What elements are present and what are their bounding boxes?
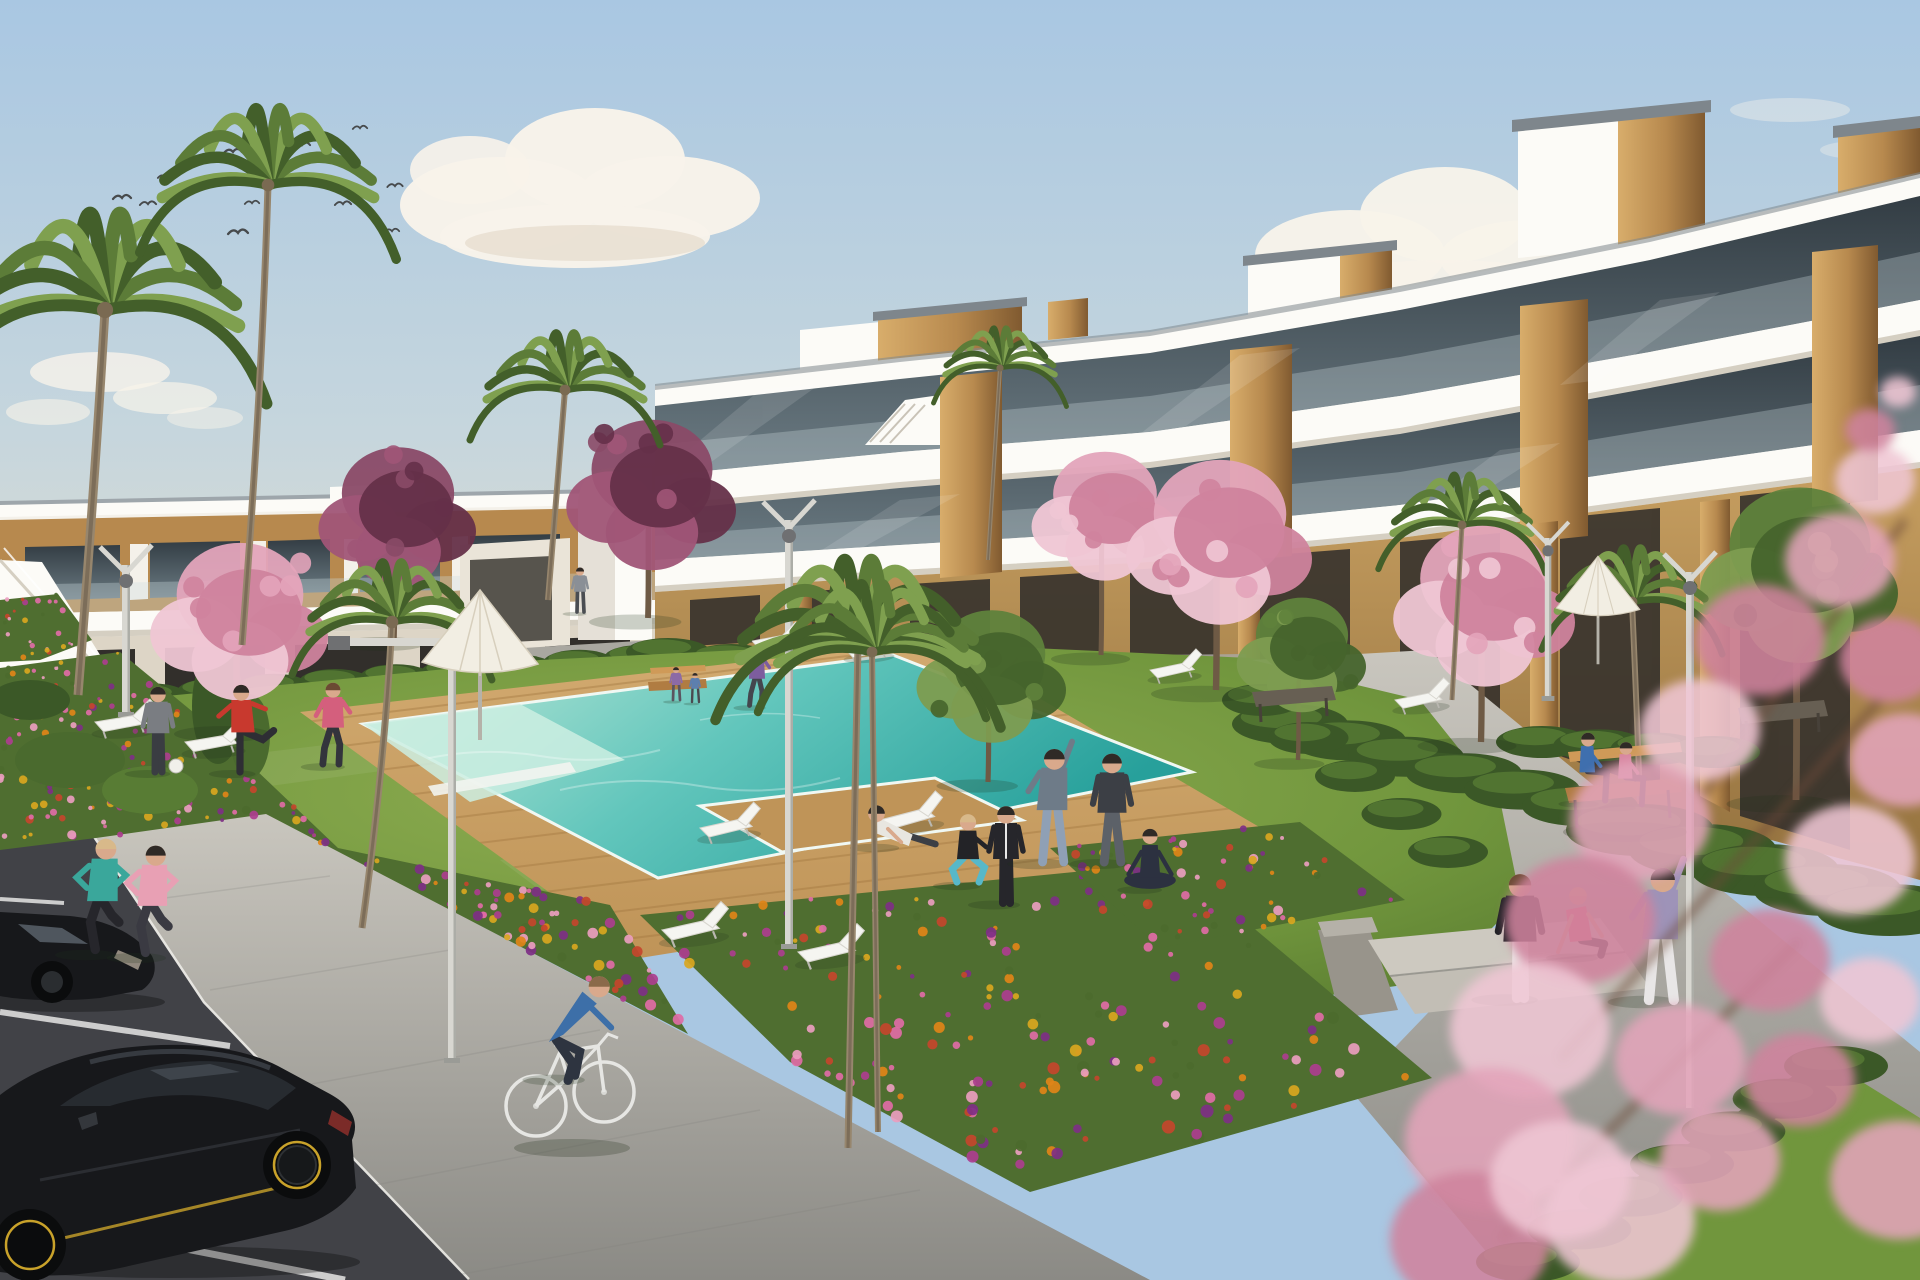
blossom-cluster (1745, 1033, 1855, 1127)
flower (973, 1077, 983, 1087)
flower (684, 958, 695, 969)
flower (1223, 1114, 1233, 1124)
flower (539, 920, 545, 926)
flower (1224, 1104, 1231, 1111)
person-limb (692, 689, 693, 703)
flower (125, 741, 132, 748)
flower (1001, 990, 1012, 1001)
lamp-base (781, 944, 797, 949)
flower (632, 946, 643, 957)
person-shadow (107, 953, 166, 963)
palm-crown (97, 302, 113, 318)
flower (415, 864, 425, 874)
flower (1280, 915, 1285, 920)
flower (1261, 924, 1267, 930)
flower (787, 1001, 797, 1011)
flower (828, 972, 837, 981)
flower (758, 900, 767, 909)
flower (490, 903, 497, 910)
flower (1085, 992, 1093, 1000)
tree-foliage-dot (290, 553, 311, 574)
flower (1186, 1062, 1194, 1070)
flower (6, 666, 11, 671)
flower (606, 960, 614, 968)
flower (554, 910, 560, 916)
flower (1200, 1105, 1213, 1118)
flower (69, 709, 75, 715)
cloud (1730, 98, 1850, 122)
person-body (691, 678, 699, 689)
flower (1099, 906, 1107, 914)
flower (961, 972, 967, 978)
bench-leg (1818, 713, 1819, 732)
flower (953, 1041, 961, 1049)
flower (1270, 871, 1274, 875)
roof-wood-box-2 (1048, 298, 1088, 340)
flower (504, 892, 514, 902)
tree-foliage-dot (657, 489, 677, 509)
flower (1179, 840, 1187, 848)
tree-foliage-dot (1206, 540, 1228, 562)
flower (1162, 1120, 1175, 1133)
flower (421, 874, 431, 884)
flower (1357, 887, 1366, 896)
flower (986, 1080, 993, 1087)
blossom-cluster (1695, 585, 1825, 696)
tree-foliage-dot (1291, 646, 1306, 661)
flower (55, 794, 62, 801)
flower (292, 811, 296, 815)
flower (1091, 850, 1095, 854)
flower (130, 755, 135, 760)
flower (177, 810, 181, 814)
flower (1291, 1055, 1300, 1064)
flower (1071, 850, 1080, 859)
tree-foliage-dot (1466, 633, 1488, 655)
flower (620, 995, 626, 1001)
flower (42, 676, 45, 679)
flower (102, 659, 108, 665)
flower (1028, 1019, 1039, 1030)
flower (70, 681, 74, 685)
flower (836, 898, 844, 906)
flower (927, 1039, 937, 1049)
flower (1202, 902, 1207, 907)
flower (1172, 1072, 1179, 1079)
flower (504, 934, 510, 940)
tree-foliage-dot (1025, 683, 1043, 701)
flower (35, 598, 41, 604)
flower (1, 745, 7, 751)
blossom-cluster (1820, 958, 1920, 1043)
flower (1315, 1012, 1324, 1021)
flower (116, 652, 119, 655)
flower (29, 814, 34, 819)
flower (13, 610, 16, 613)
blossom-cluster (1615, 1005, 1745, 1116)
flower (1236, 915, 1246, 925)
palm-crown (996, 364, 1003, 371)
blossom-cluster (1660, 1109, 1780, 1211)
flower (516, 936, 526, 946)
flower (76, 724, 82, 730)
flower (1161, 924, 1169, 932)
flower (211, 788, 218, 795)
flower (1036, 1013, 1042, 1019)
flower (108, 683, 114, 689)
flower (161, 821, 168, 828)
flower (968, 1035, 973, 1040)
flower (594, 960, 605, 971)
flower (131, 693, 136, 698)
flower (1304, 861, 1309, 866)
flower (572, 944, 578, 950)
tree-foliage-dot (386, 538, 405, 557)
flower (742, 959, 750, 967)
flower (661, 998, 667, 1004)
flower (279, 802, 285, 808)
flower (1046, 1078, 1054, 1086)
flower (679, 948, 690, 959)
flower (775, 939, 781, 945)
tree-foliage-dot (347, 539, 366, 558)
flower (6, 632, 10, 636)
flower (1085, 887, 1093, 895)
flower (1086, 1037, 1095, 1046)
lamp-head (1542, 545, 1553, 556)
flower (599, 926, 607, 934)
person-limb (577, 591, 578, 612)
flower (32, 669, 36, 673)
flower (59, 717, 64, 722)
flower (56, 630, 62, 636)
flower (861, 1072, 869, 1080)
tree-shadow (1051, 653, 1130, 666)
flower (250, 786, 257, 793)
soccer-ball (169, 759, 183, 773)
flower (50, 809, 57, 816)
flower (1309, 1035, 1318, 1044)
flower (1227, 1039, 1233, 1045)
person-limb (1649, 939, 1655, 1000)
hedge-shrub-light (1275, 724, 1331, 742)
tree-foliage-dot (594, 424, 614, 444)
flower (1239, 1074, 1246, 1081)
tree-shadow (1151, 686, 1252, 703)
flower (1152, 1076, 1163, 1087)
person-limb (583, 591, 584, 612)
person-body (1097, 772, 1126, 812)
flower (1192, 913, 1197, 918)
flower (531, 887, 541, 897)
flower (990, 940, 996, 946)
flower (61, 644, 66, 649)
flower (928, 899, 935, 906)
flower (983, 1002, 991, 1010)
tree-foliage-dot (1262, 613, 1277, 628)
person-body (957, 831, 979, 860)
flower (1249, 856, 1257, 864)
flower (880, 1023, 892, 1035)
flower (1030, 1031, 1039, 1040)
flower (647, 968, 652, 973)
tree-shadow (937, 779, 1018, 792)
flower (3, 621, 7, 625)
flower (1050, 896, 1060, 906)
flower (45, 648, 50, 653)
tree-foliage-dot (931, 700, 949, 718)
flower (59, 660, 64, 665)
flower (8, 617, 11, 620)
flower (20, 654, 26, 660)
flower (300, 816, 307, 823)
cloud (410, 136, 530, 204)
flower (31, 802, 38, 809)
flower (807, 1025, 815, 1033)
flower (1051, 1148, 1062, 1159)
person-body (672, 673, 681, 685)
flower (1032, 902, 1041, 911)
flower (966, 1091, 978, 1103)
flower (677, 914, 684, 921)
flower (986, 994, 991, 999)
flower (1171, 1090, 1180, 1099)
flower (117, 832, 123, 838)
flower (232, 810, 237, 815)
person-shadow (684, 703, 700, 706)
flower (146, 681, 153, 688)
flower (41, 613, 45, 617)
flower (1135, 1064, 1143, 1072)
flower (308, 828, 314, 834)
person-shadow (209, 770, 256, 778)
lamp-pole-shade (454, 648, 457, 1062)
person-shadow (663, 700, 681, 703)
flower (223, 792, 229, 798)
flower (493, 889, 501, 897)
flower (1282, 1053, 1289, 1060)
flower (1401, 1073, 1409, 1081)
flower (6, 738, 13, 745)
flower (1012, 943, 1020, 951)
person-limb (698, 689, 699, 703)
tree-foliage-dot (1199, 479, 1221, 501)
flower (1265, 833, 1273, 841)
person-limb (1115, 812, 1121, 862)
cloud (465, 225, 705, 261)
tree-foliage (610, 445, 711, 528)
flower (54, 666, 58, 670)
flower (730, 950, 736, 956)
flower (864, 1017, 875, 1028)
flower (885, 902, 894, 911)
flower (1239, 929, 1244, 934)
flower (1211, 922, 1218, 929)
flower (1245, 864, 1253, 872)
flower (1201, 927, 1209, 935)
flower (103, 824, 107, 828)
hedge-shrub-light (1414, 838, 1470, 856)
flower (686, 910, 695, 919)
flower (217, 808, 223, 814)
flower (375, 858, 380, 863)
flower (826, 1057, 833, 1064)
flower (1019, 1082, 1026, 1089)
tree-foliage-dot (1061, 515, 1078, 532)
flower (22, 835, 26, 839)
flower (1335, 1068, 1345, 1078)
blossom-cluster (1785, 513, 1895, 607)
flower (914, 897, 918, 901)
flower (249, 811, 258, 820)
tree-foliage-dot (1049, 502, 1066, 519)
blossom-cluster (1835, 446, 1915, 514)
flower (762, 928, 771, 937)
lamp-base (1542, 696, 1555, 701)
flower (97, 697, 100, 700)
flower (1094, 1076, 1099, 1081)
flower (86, 710, 92, 716)
person-limb (1003, 858, 1004, 903)
tree-foliage-dot (984, 650, 1002, 668)
flower (64, 670, 71, 677)
flower (1004, 974, 1014, 984)
tree-foliage-dot (1279, 609, 1294, 624)
flower (572, 919, 579, 926)
flower (1175, 934, 1180, 939)
flower (557, 952, 566, 961)
tree-foliage-dot (183, 576, 204, 597)
tree-foliage (1174, 487, 1284, 578)
flower (1047, 1062, 1059, 1074)
person-limb (161, 732, 162, 772)
flower (518, 893, 524, 899)
flower (220, 818, 224, 822)
tree-foliage-dot (1343, 674, 1358, 689)
flower (910, 974, 915, 979)
flower (1144, 943, 1153, 952)
person-limb (679, 685, 680, 700)
flower (1015, 1160, 1024, 1169)
tree-foliage (1270, 617, 1347, 680)
flower (1081, 1069, 1089, 1077)
tree-foliage-dot (280, 575, 301, 596)
flower (1172, 847, 1176, 851)
flower (918, 927, 928, 937)
flower (70, 722, 76, 728)
flower (40, 800, 48, 808)
flower (494, 911, 502, 919)
tree-foliage-dot (384, 445, 403, 464)
flower (542, 934, 552, 944)
flower (251, 779, 256, 784)
bicycle-shadow (514, 1139, 630, 1157)
person-limb (1058, 810, 1064, 862)
flower (1070, 1045, 1082, 1057)
tree-foliage-dot (260, 576, 281, 597)
flower (1348, 1043, 1360, 1055)
flower (976, 1135, 985, 1144)
flower (614, 979, 623, 988)
flower (1216, 879, 1226, 889)
flower (1233, 989, 1242, 998)
flower (743, 932, 748, 937)
flower (1273, 905, 1283, 915)
person-limb (1667, 939, 1674, 1000)
flower (1269, 900, 1274, 905)
tree-foliage-dot (1313, 655, 1328, 670)
tree-foliage-dot (405, 462, 424, 481)
flower (886, 1084, 894, 1092)
flower (54, 663, 58, 667)
bench-leg (1326, 698, 1327, 716)
flower (22, 617, 28, 623)
flower (1240, 825, 1247, 832)
flower (519, 926, 526, 933)
flower (1168, 952, 1173, 957)
flower (433, 881, 437, 885)
flower (1197, 1002, 1206, 1011)
flower (894, 1018, 904, 1028)
flower (1082, 1136, 1088, 1142)
flower (1267, 913, 1276, 922)
flower (1195, 875, 1200, 880)
tree-shadow (1418, 738, 1517, 754)
flower (1005, 966, 1013, 974)
flower (1095, 1010, 1102, 1017)
flower (60, 607, 66, 613)
flower (1016, 1140, 1027, 1151)
flower (31, 652, 34, 655)
flower (559, 930, 568, 939)
palm-crown (560, 385, 571, 396)
flower (529, 903, 539, 913)
cloud (167, 407, 243, 429)
tree-foliage-dot (190, 598, 211, 619)
flower (1002, 947, 1011, 956)
flower (1260, 851, 1265, 856)
blossom-cluster (1785, 805, 1915, 916)
flower (1389, 898, 1393, 902)
blossom-cluster (1845, 409, 1895, 452)
flower (729, 911, 737, 919)
flower (227, 778, 233, 784)
flower (945, 1012, 950, 1017)
palm-crown (262, 179, 275, 192)
flower (673, 1014, 684, 1025)
hedge-shrub-light (632, 639, 691, 654)
flower (645, 999, 656, 1010)
flower (605, 918, 615, 928)
flower (67, 796, 75, 804)
flower (205, 816, 209, 820)
flower (920, 992, 926, 998)
flower (59, 815, 66, 822)
flower (638, 986, 648, 996)
flower (587, 928, 598, 939)
flower (886, 911, 892, 917)
flower (45, 814, 50, 819)
lamp-head (119, 574, 133, 588)
flower (1112, 1058, 1120, 1066)
flower (30, 723, 38, 731)
flower (1143, 899, 1153, 909)
hedge-shrub-light (1473, 772, 1554, 794)
flower (1327, 1012, 1339, 1024)
flower (937, 917, 947, 927)
lamp-head (1683, 581, 1697, 595)
tree-foliage-dot (1236, 576, 1258, 598)
